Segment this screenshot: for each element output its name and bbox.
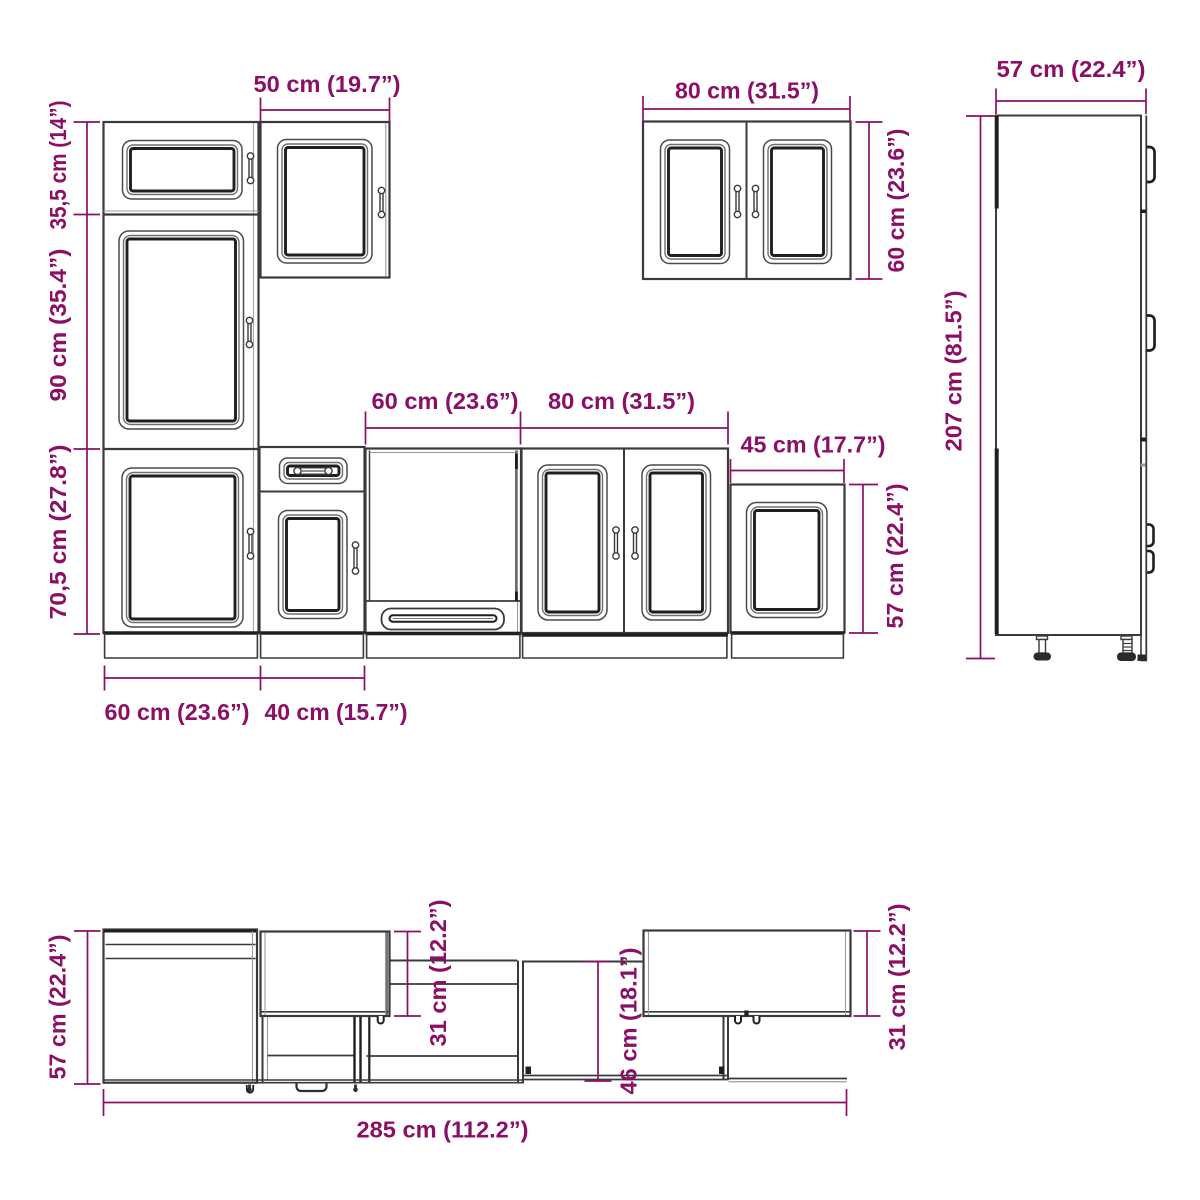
svg-text:46 cm (18.1”): 46 cm (18.1”)	[616, 948, 642, 1095]
svg-text:60 cm (23.6”): 60 cm (23.6”)	[105, 699, 250, 725]
svg-text:50 cm (19.7”): 50 cm (19.7”)	[254, 71, 401, 97]
svg-text:31 cm (12.2”): 31 cm (12.2”)	[884, 904, 910, 1051]
svg-text:60 cm (23.6”): 60 cm (23.6”)	[883, 129, 909, 273]
svg-text:207 cm (81.5”): 207 cm (81.5”)	[941, 291, 967, 452]
svg-text:35,5 cm (14”): 35,5 cm (14”)	[45, 101, 71, 230]
svg-text:45 cm (17.7”): 45 cm (17.7”)	[741, 432, 886, 458]
svg-text:57 cm (22.4”): 57 cm (22.4”)	[997, 56, 1146, 82]
svg-text:60 cm (23.6”): 60 cm (23.6”)	[372, 388, 519, 414]
svg-text:31 cm (12.2”): 31 cm (12.2”)	[425, 900, 451, 1047]
svg-text:57 cm (22.4”): 57 cm (22.4”)	[882, 484, 908, 629]
svg-text:80 cm (31.5”): 80 cm (31.5”)	[675, 78, 819, 104]
svg-text:70,5 cm (27.8”): 70,5 cm (27.8”)	[45, 445, 71, 620]
svg-text:40 cm (15.7”): 40 cm (15.7”)	[265, 699, 408, 725]
svg-text:80 cm (31.5”): 80 cm (31.5”)	[548, 388, 695, 414]
svg-text:57 cm (22.4”): 57 cm (22.4”)	[45, 935, 71, 1080]
svg-text:90 cm (35.4”): 90 cm (35.4”)	[45, 249, 71, 402]
svg-text:285 cm (112.2”): 285 cm (112.2”)	[357, 1117, 529, 1143]
